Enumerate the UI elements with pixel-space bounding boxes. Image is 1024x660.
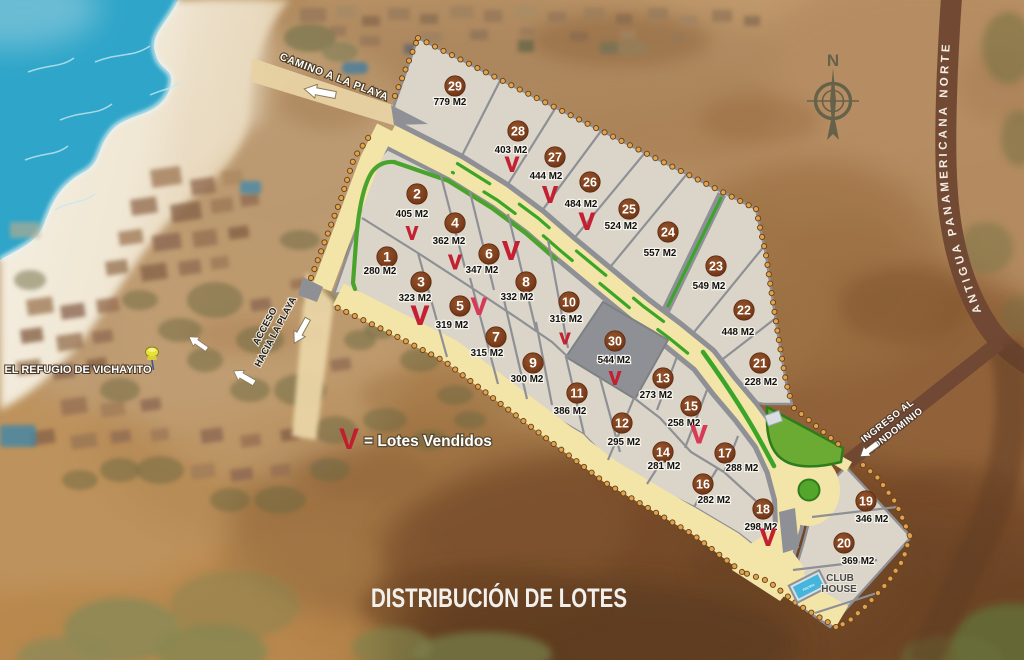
svg-text:319 M2: 319 M2	[436, 320, 469, 331]
svg-text:23: 23	[709, 260, 723, 274]
svg-text:V: V	[339, 423, 359, 456]
svg-text:V: V	[471, 294, 487, 321]
svg-text:362 M2: 362 M2	[433, 236, 466, 247]
svg-text:332 M2: 332 M2	[501, 292, 534, 303]
svg-text:448 M2: 448 M2	[722, 327, 755, 338]
svg-text:347 M2: 347 M2	[466, 265, 499, 276]
svg-text:V: V	[406, 223, 418, 243]
svg-text:273 M2: 273 M2	[640, 390, 673, 401]
svg-text:EL REFUGIO DE VICHAYITO: EL REFUGIO DE VICHAYITO	[4, 364, 152, 376]
svg-text:300 M2: 300 M2	[511, 374, 544, 385]
svg-text:315 M2: 315 M2	[471, 348, 504, 359]
svg-text:19: 19	[859, 495, 873, 509]
svg-text:CLUB: CLUB	[826, 573, 854, 584]
svg-text:9: 9	[529, 355, 537, 371]
svg-text:405 M2: 405 M2	[396, 209, 429, 220]
svg-text:29: 29	[448, 80, 462, 94]
svg-text:281 M2: 281 M2	[648, 461, 681, 472]
svg-text:228 M2: 228 M2	[745, 377, 778, 388]
svg-text:8: 8	[522, 274, 530, 290]
svg-text:V: V	[579, 209, 595, 236]
svg-text:V: V	[560, 331, 571, 348]
svg-text:N: N	[827, 51, 839, 70]
svg-text:544 M2: 544 M2	[598, 355, 631, 366]
svg-text:386 M2: 386 M2	[554, 406, 587, 417]
svg-text:V: V	[448, 252, 462, 274]
svg-text:14: 14	[656, 446, 670, 460]
svg-text:295 M2: 295 M2	[608, 437, 641, 448]
svg-text:280 M2: 280 M2	[364, 266, 397, 277]
svg-text:12: 12	[615, 417, 629, 431]
svg-text:13: 13	[656, 372, 670, 386]
svg-text:779 M2: 779 M2	[434, 97, 467, 108]
svg-text:11: 11	[570, 387, 583, 401]
svg-text:5: 5	[456, 298, 464, 314]
svg-text:V: V	[542, 181, 558, 207]
svg-text:24: 24	[661, 226, 675, 240]
svg-text:18: 18	[756, 503, 770, 517]
svg-text:549 M2: 549 M2	[693, 281, 726, 292]
svg-text:20: 20	[837, 537, 851, 551]
svg-text:22: 22	[737, 304, 751, 318]
svg-text:27: 27	[548, 151, 562, 165]
svg-text:4: 4	[451, 215, 459, 231]
svg-text:6: 6	[485, 246, 493, 262]
svg-text:288 M2: 288 M2	[726, 463, 759, 474]
svg-text:V: V	[502, 235, 520, 265]
svg-text:557 M2: 557 M2	[644, 248, 677, 259]
svg-text:V: V	[411, 301, 429, 331]
svg-text:= Lotes Vendidos: = Lotes Vendidos	[364, 433, 492, 450]
svg-text:10: 10	[562, 296, 576, 310]
svg-text:30: 30	[608, 335, 622, 349]
svg-text:316 M2: 316 M2	[550, 314, 583, 325]
svg-text:26: 26	[583, 176, 597, 190]
svg-text:524 M2: 524 M2	[605, 221, 638, 232]
svg-text:1: 1	[383, 249, 391, 265]
svg-text:V: V	[609, 368, 621, 388]
svg-text:282 M2: 282 M2	[698, 495, 731, 506]
svg-text:V: V	[760, 525, 776, 552]
svg-text:V: V	[691, 421, 708, 449]
svg-text:DISTRIBUCIÓN DE LOTES: DISTRIBUCIÓN DE LOTES	[371, 582, 627, 613]
svg-text:346 M2: 346 M2	[856, 514, 889, 525]
svg-text:7: 7	[492, 329, 500, 345]
svg-text:28: 28	[511, 125, 525, 139]
svg-text:369 M2: 369 M2	[842, 556, 875, 567]
svg-text:V: V	[505, 154, 519, 177]
svg-text:17: 17	[718, 447, 732, 461]
svg-text:HOUSE: HOUSE	[821, 584, 857, 595]
svg-text:25: 25	[622, 203, 636, 217]
svg-text:2: 2	[413, 186, 421, 202]
svg-text:15: 15	[684, 400, 698, 414]
svg-text:16: 16	[696, 478, 710, 492]
svg-text:21: 21	[753, 357, 767, 371]
svg-text:3: 3	[417, 274, 425, 290]
